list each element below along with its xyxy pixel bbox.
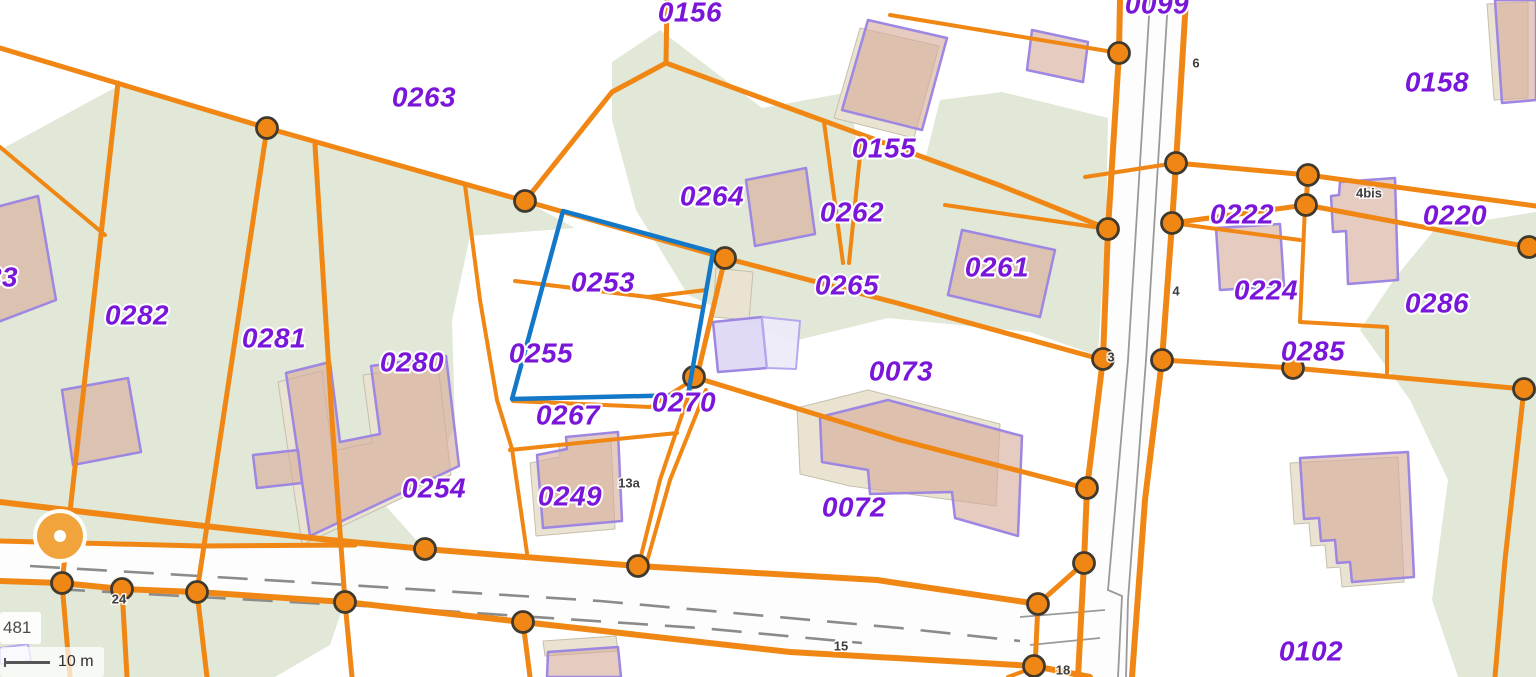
- parcel-vertex-node[interactable]: [1162, 213, 1183, 234]
- parcel-vertex-node[interactable]: [513, 612, 534, 633]
- parcel-label-0265[interactable]: 0265: [815, 270, 879, 301]
- parcel-vertex-node[interactable]: [187, 582, 208, 603]
- house-number-label: 4: [1172, 284, 1180, 299]
- building-annex: [762, 317, 800, 369]
- parcel-label-0255[interactable]: 0255: [509, 338, 573, 369]
- parcel-vertex-node[interactable]: [1098, 219, 1119, 240]
- building: [547, 647, 621, 677]
- house-number-label: 13a: [618, 476, 640, 491]
- parcel-label-0224[interactable]: 0224: [1234, 275, 1298, 306]
- parcel-label-83[interactable]: 83: [0, 262, 18, 293]
- parcel-vertex-node[interactable]: [628, 556, 649, 577]
- parcel-vertex-node[interactable]: [1296, 195, 1317, 216]
- parcel-vertex-node[interactable]: [715, 248, 736, 269]
- map-canvas[interactable]: 0156009902630155015802640262022202200261…: [0, 0, 1536, 677]
- parcel-label-0254[interactable]: 0254: [402, 473, 466, 504]
- building: [62, 378, 141, 465]
- coordinate-label: 481: [3, 618, 31, 638]
- coordinate-box: 481: [0, 612, 41, 644]
- parcel-label-0280[interactable]: 0280: [380, 347, 444, 378]
- building: [253, 450, 302, 488]
- parcel-vertex-node[interactable]: [1166, 153, 1187, 174]
- parcel-label-0253[interactable]: 0253: [571, 267, 635, 298]
- parcel-label-0264[interactable]: 0264: [680, 181, 744, 212]
- house-number-label: 4bis: [1356, 186, 1382, 201]
- house-number-label: 18: [1056, 663, 1070, 677]
- house-number-label: 15: [834, 639, 848, 654]
- house-number-label: 24: [112, 592, 127, 607]
- parcel-label-0262[interactable]: 0262: [820, 197, 884, 228]
- parcel-vertex-node[interactable]: [415, 539, 436, 560]
- parcel-label-0267[interactable]: 0267: [536, 400, 601, 431]
- parcel-vertex-node[interactable]: [1109, 43, 1130, 64]
- location-marker-dot: [54, 530, 66, 542]
- parcel-label-0102[interactable]: 0102: [1279, 636, 1343, 667]
- parcel-label-0158[interactable]: 0158: [1405, 67, 1469, 98]
- parcel-vertex-node[interactable]: [1024, 656, 1045, 677]
- parcel-label-0072[interactable]: 0072: [822, 492, 886, 523]
- parcel-label-0285[interactable]: 0285: [1281, 336, 1345, 367]
- house-number-label: 6: [1192, 56, 1199, 71]
- parcel-vertex-node[interactable]: [515, 191, 536, 212]
- parcel-vertex-node[interactable]: [335, 592, 356, 613]
- parcel-label-0155[interactable]: 0155: [852, 133, 916, 164]
- parcel-label-0286[interactable]: 0286: [1405, 288, 1469, 319]
- building-annex: [713, 317, 767, 372]
- parcel-vertex-node[interactable]: [1514, 379, 1535, 400]
- parcel-label-0270[interactable]: 0270: [652, 387, 716, 418]
- parcel-label-0282[interactable]: 0282: [105, 300, 169, 331]
- parcel-vertex-node[interactable]: [1028, 594, 1049, 615]
- parcel-label-0220[interactable]: 0220: [1423, 200, 1487, 231]
- parcel-label-0073[interactable]: 0073: [869, 356, 933, 387]
- house-number-label: 3: [1107, 350, 1114, 365]
- parcel-vertex-node[interactable]: [1152, 350, 1173, 371]
- parcel-vertex-node[interactable]: [52, 573, 73, 594]
- building: [1495, 0, 1536, 103]
- parcel-label-0281[interactable]: 0281: [242, 323, 306, 354]
- parcel-vertex-node[interactable]: [257, 118, 278, 139]
- parcel-vertex-node[interactable]: [1519, 237, 1536, 258]
- scale-bar-line: [4, 661, 50, 664]
- parcel-label-0222[interactable]: 0222: [1210, 199, 1274, 230]
- parcel-label-0261[interactable]: 0261: [965, 252, 1029, 283]
- parcel-vertex-node[interactable]: [1074, 553, 1095, 574]
- parcel-label-0249[interactable]: 0249: [538, 481, 602, 512]
- scale-bar-label: 10 m: [58, 653, 94, 671]
- parcel-vertex-node[interactable]: [1298, 165, 1319, 186]
- cadastre-map-viewport[interactable]: 0156009902630155015802640262022202200261…: [0, 0, 1536, 677]
- parcel-label-0099[interactable]: 0099: [1125, 0, 1189, 20]
- building: [746, 168, 815, 246]
- parcel-vertex-node[interactable]: [1077, 478, 1098, 499]
- parcel-label-0263[interactable]: 0263: [392, 82, 456, 113]
- scale-bar: 10 m: [0, 647, 104, 677]
- parcel-label-0156[interactable]: 0156: [658, 0, 722, 28]
